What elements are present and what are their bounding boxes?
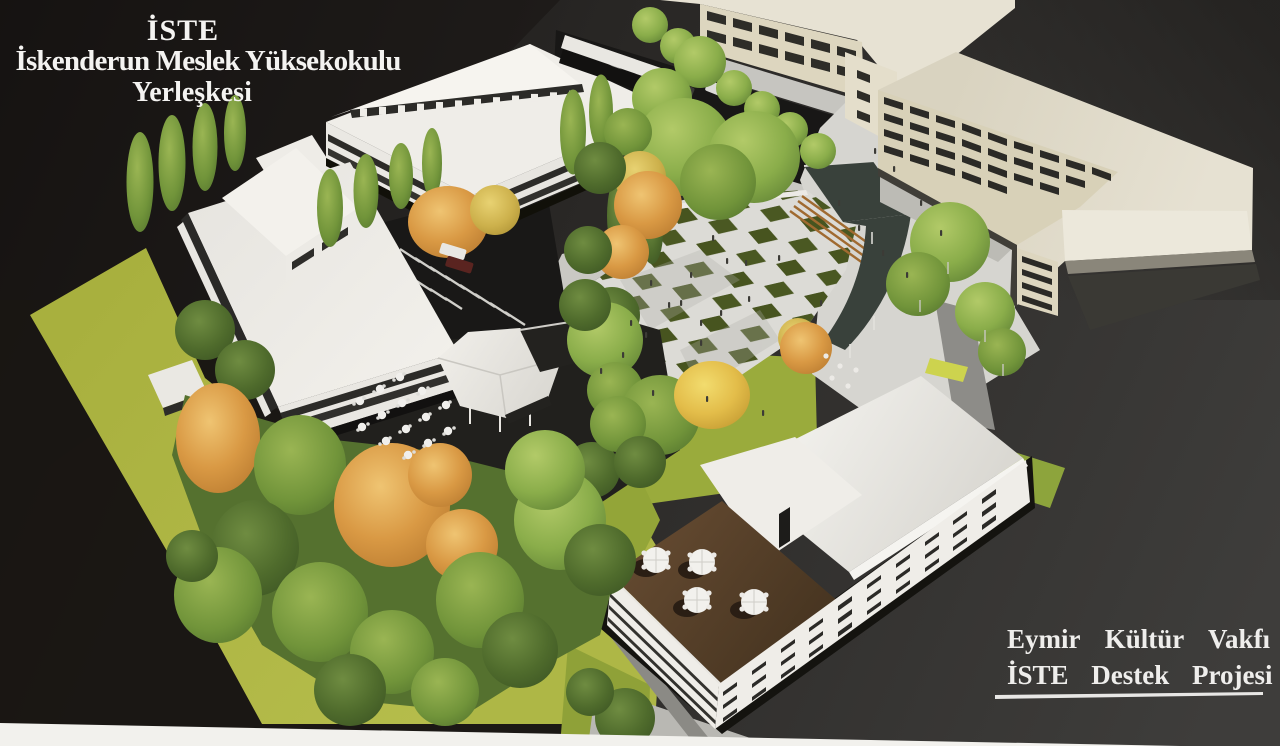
svg-text:Eymir Kültür Vakfı: Eymir Kültür Vakfı — [1007, 624, 1271, 654]
svg-text:İSTE Destek Projesi: İSTE Destek Projesi — [1007, 660, 1273, 690]
svg-text:Yerleşkesi: Yerleşkesi — [132, 77, 252, 108]
svg-text:İskenderun Meslek Yüksekokulu: İskenderun Meslek Yüksekokulu — [15, 44, 401, 77]
svg-text:İSTE: İSTE — [147, 14, 219, 47]
